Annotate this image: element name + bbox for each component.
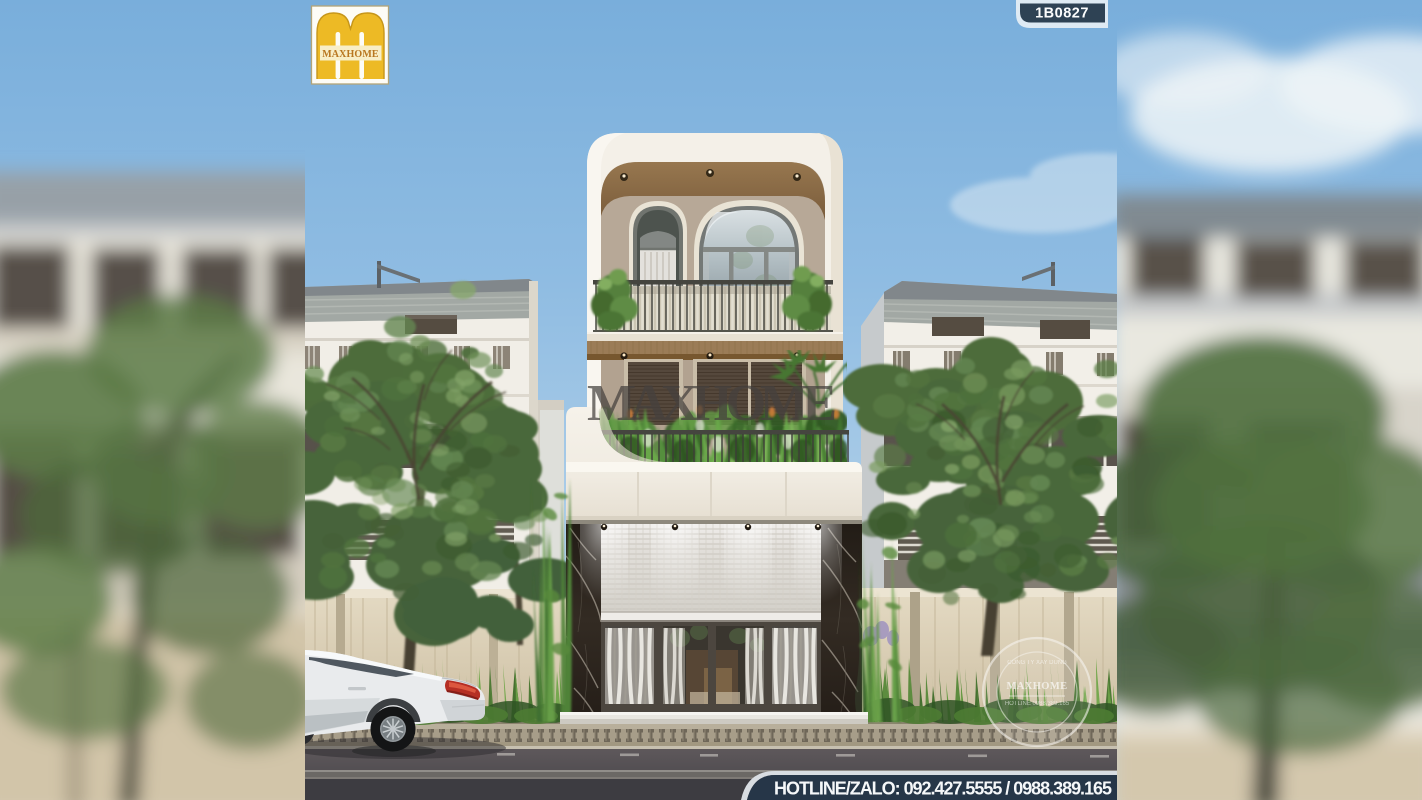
svg-text:HOTLINE 0988.389.165: HOTLINE 0988.389.165 <box>1005 701 1070 707</box>
svg-text:HOTLINE/ZALO: 092.427.5555 / 0: HOTLINE/ZALO: 092.427.5555 / 0988.389.16… <box>774 779 1112 799</box>
svg-text:MAXHOME: MAXHOME <box>1006 681 1067 692</box>
svg-text:1B0827: 1B0827 <box>1035 6 1089 22</box>
svg-text:MAXHOME: MAXHOME <box>587 375 837 432</box>
svg-text:MAXHOME: MAXHOME <box>322 49 379 60</box>
svg-text:CONG TY XAY DUNG: CONG TY XAY DUNG <box>1007 660 1067 666</box>
